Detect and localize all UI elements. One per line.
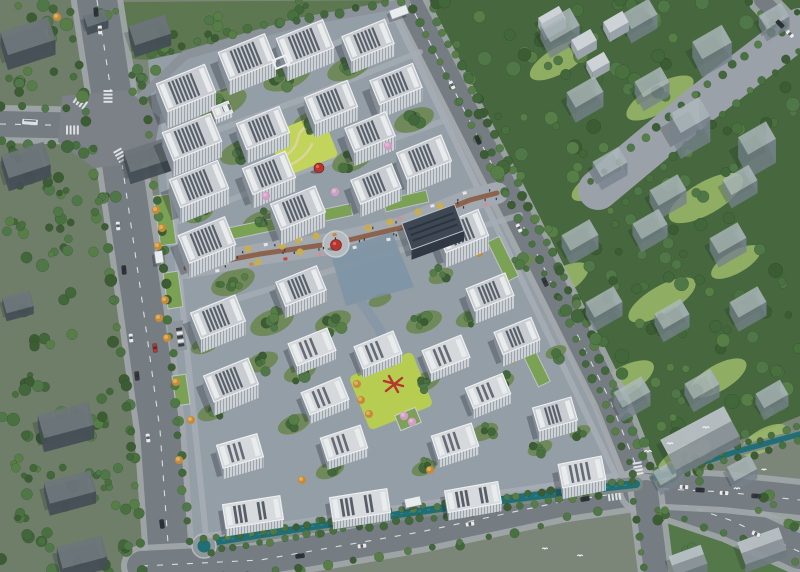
tree <box>518 48 531 61</box>
tree <box>612 428 620 436</box>
yellow-street-tree <box>386 218 393 225</box>
entrance-gate <box>154 251 164 264</box>
tree <box>560 304 572 316</box>
tree <box>318 530 325 537</box>
crosswalk-bar <box>66 126 68 135</box>
tree <box>111 501 120 510</box>
tree <box>473 11 485 23</box>
tree <box>553 56 562 65</box>
tree <box>49 5 58 14</box>
pedestrian <box>496 198 497 200</box>
pedestrian <box>485 199 486 201</box>
tree <box>468 322 474 328</box>
tree <box>22 529 33 540</box>
tree <box>381 0 388 7</box>
tree <box>67 219 74 226</box>
tree <box>754 41 762 49</box>
tree <box>62 104 70 112</box>
tree <box>101 485 107 491</box>
tree <box>19 383 31 395</box>
tree <box>536 449 545 458</box>
tree <box>635 319 645 329</box>
bird <box>762 469 767 470</box>
car-glass <box>698 488 701 492</box>
tree <box>72 196 82 206</box>
tree <box>457 61 467 71</box>
tree <box>428 46 436 54</box>
tree <box>579 430 586 437</box>
tree <box>380 522 388 530</box>
pedestrian <box>395 221 396 223</box>
car-glass <box>468 522 471 526</box>
tree <box>668 225 678 235</box>
tree <box>67 329 78 340</box>
tree <box>488 149 496 157</box>
autumn-tree-highlight <box>164 335 168 339</box>
blossom-tree-highlight <box>409 419 413 423</box>
tree <box>474 109 484 119</box>
tree <box>21 473 27 479</box>
tree <box>651 49 665 63</box>
tree <box>747 331 759 343</box>
tree <box>758 76 766 84</box>
pedestrian <box>364 238 365 240</box>
blossom-tree-highlight <box>401 413 405 417</box>
yellow-street-tree <box>296 248 303 255</box>
car <box>719 491 728 496</box>
autumn-tree-highlight <box>366 411 370 415</box>
tree <box>520 114 527 121</box>
tree <box>138 74 145 81</box>
tree <box>70 73 77 80</box>
autumn-tree-highlight <box>188 417 192 421</box>
tree <box>696 469 703 476</box>
tree <box>440 272 446 278</box>
tree <box>529 241 536 248</box>
tree <box>638 549 644 555</box>
tree <box>335 9 345 19</box>
tree <box>516 502 523 509</box>
tree <box>515 259 525 269</box>
tree <box>486 534 492 540</box>
tree <box>468 86 476 94</box>
tree <box>779 442 786 449</box>
tree <box>654 507 660 513</box>
tree <box>2 227 11 236</box>
tree <box>131 482 138 489</box>
tree <box>741 429 750 438</box>
tree <box>550 281 556 287</box>
tree <box>107 336 119 348</box>
tree <box>293 534 300 541</box>
autumn-tree-highlight <box>176 457 180 461</box>
tree <box>590 333 602 345</box>
car <box>134 371 139 380</box>
tree <box>668 33 678 43</box>
bus <box>22 118 38 125</box>
tree <box>720 457 727 464</box>
tree <box>365 523 373 531</box>
tree <box>404 548 411 555</box>
tree <box>174 432 181 439</box>
car <box>115 221 120 230</box>
tree <box>757 437 764 444</box>
tree <box>429 544 435 550</box>
red-sphere-sculpture <box>314 163 324 173</box>
tree <box>331 314 341 324</box>
tree <box>293 17 300 24</box>
tree <box>754 244 765 255</box>
tree <box>627 144 635 152</box>
tree <box>230 281 236 287</box>
tree <box>281 81 292 92</box>
tree <box>781 55 790 64</box>
tree <box>18 221 25 228</box>
tree <box>615 248 622 255</box>
tree <box>598 143 608 153</box>
tree <box>437 59 443 65</box>
tree <box>392 517 400 525</box>
tree <box>615 349 629 363</box>
tree <box>430 269 437 276</box>
tree <box>602 401 609 408</box>
tree <box>228 30 237 39</box>
tree <box>661 507 669 515</box>
tree <box>416 18 425 27</box>
tree <box>214 12 223 21</box>
car <box>97 25 102 34</box>
tree <box>632 284 642 294</box>
tree <box>719 111 726 118</box>
tree <box>560 69 571 80</box>
tree <box>544 225 552 233</box>
tree <box>63 187 69 193</box>
car <box>145 433 150 442</box>
tree <box>260 208 267 215</box>
tree <box>50 68 58 76</box>
tree <box>100 470 110 480</box>
tree <box>75 61 83 69</box>
tree <box>504 503 512 511</box>
red-sphere-sculpture <box>331 240 342 251</box>
tree <box>704 81 711 88</box>
tree <box>496 144 504 152</box>
tree <box>456 98 463 105</box>
autumn-tree-highlight <box>173 379 177 383</box>
tree <box>622 198 630 206</box>
tree <box>352 4 359 11</box>
tree <box>14 87 23 96</box>
tree <box>662 238 673 249</box>
yellow-street-tree <box>364 224 371 231</box>
tree <box>168 363 176 371</box>
tree <box>543 239 550 246</box>
tree <box>573 336 579 342</box>
tree <box>126 442 136 452</box>
tree <box>163 315 172 324</box>
tree <box>490 166 504 180</box>
tree <box>138 81 146 89</box>
tree <box>490 130 499 139</box>
tree <box>768 263 782 277</box>
crosswalk-bar <box>77 126 79 135</box>
tree <box>666 363 674 371</box>
tree <box>547 487 555 495</box>
tree <box>456 539 463 546</box>
tree <box>700 524 708 532</box>
tree <box>0 412 7 422</box>
tree <box>658 0 671 13</box>
tree <box>483 119 492 128</box>
car-glass <box>98 28 102 31</box>
tree <box>606 415 614 423</box>
tree <box>208 549 215 556</box>
tree <box>350 557 357 564</box>
tree <box>517 191 527 201</box>
tree <box>723 127 731 135</box>
tree <box>178 43 185 50</box>
tree <box>213 534 220 541</box>
tree <box>161 279 171 289</box>
tree <box>794 9 800 15</box>
tree <box>587 119 601 133</box>
tree <box>626 459 632 465</box>
crosswalk-bar <box>70 126 72 135</box>
tree <box>271 324 278 331</box>
tree <box>778 277 786 285</box>
tree <box>182 502 191 511</box>
tree <box>468 122 475 129</box>
tree <box>90 145 97 152</box>
tree <box>692 91 699 98</box>
pedestrian <box>225 265 226 267</box>
tree <box>642 134 650 142</box>
tree <box>103 243 113 253</box>
tree <box>38 538 44 544</box>
tree <box>517 172 526 181</box>
tree <box>652 123 660 131</box>
tree <box>679 250 687 258</box>
pedestrian <box>457 202 458 204</box>
tree <box>136 539 145 548</box>
tree <box>14 78 24 88</box>
tree <box>682 365 689 372</box>
tree <box>695 477 703 485</box>
tree <box>669 152 678 161</box>
tree <box>78 148 89 159</box>
tree <box>53 207 63 217</box>
tree <box>535 225 544 234</box>
tree <box>374 552 384 562</box>
tree <box>504 494 510 500</box>
autumn-tree-highlight <box>156 315 160 319</box>
tree <box>302 530 310 538</box>
tree <box>721 167 731 177</box>
tree <box>241 273 248 280</box>
pedestrian <box>284 249 285 251</box>
car-glass <box>722 491 725 495</box>
tree <box>572 299 581 308</box>
tree <box>597 387 603 393</box>
tree <box>47 140 56 149</box>
tree <box>21 252 32 263</box>
tree <box>548 248 557 257</box>
tree <box>544 62 552 70</box>
car-glass <box>160 522 164 525</box>
tree <box>7 413 20 426</box>
tree <box>69 35 76 42</box>
tree <box>745 439 751 445</box>
tree <box>178 469 186 477</box>
tree <box>110 191 122 203</box>
tree <box>5 75 12 82</box>
tree <box>566 142 579 155</box>
tree <box>538 523 544 529</box>
tree <box>15 454 24 463</box>
tree <box>416 514 424 522</box>
tree <box>630 498 637 505</box>
tree <box>601 367 609 375</box>
tree <box>59 464 66 471</box>
tree <box>276 18 285 27</box>
tree <box>512 493 519 500</box>
tree <box>607 207 614 214</box>
tree <box>153 196 161 204</box>
tree <box>659 252 671 264</box>
tree <box>669 414 676 421</box>
tree <box>211 34 219 42</box>
tree <box>292 378 299 385</box>
car <box>121 265 126 274</box>
tree <box>656 421 666 431</box>
tree <box>747 87 753 93</box>
tree <box>507 201 515 209</box>
tree <box>707 464 714 471</box>
tree <box>780 82 791 93</box>
car <box>679 485 688 490</box>
tree <box>514 214 523 223</box>
tree <box>723 326 731 334</box>
pedestrian <box>372 227 373 229</box>
pedestrian <box>294 252 295 254</box>
tree <box>611 220 618 227</box>
blossom-tree-highlight <box>385 143 389 147</box>
tree <box>739 15 754 30</box>
tree <box>681 516 687 522</box>
tree <box>48 251 54 257</box>
tree <box>438 29 446 37</box>
road <box>646 492 656 572</box>
blossom-tree-highlight <box>263 193 267 197</box>
tree <box>595 492 603 500</box>
crosswalk-bar <box>104 97 113 99</box>
tree <box>41 105 49 113</box>
yellow-street-tree <box>244 245 251 252</box>
tree <box>122 402 131 411</box>
tree <box>319 517 326 524</box>
autumn-tree-highlight <box>155 243 159 247</box>
tree <box>756 361 769 374</box>
pedestrian <box>318 248 319 250</box>
pedestrian <box>396 234 397 236</box>
car-glass <box>298 554 301 558</box>
sphere-highlight <box>333 242 336 245</box>
tree <box>515 148 528 161</box>
tree <box>218 281 225 288</box>
tree <box>587 178 593 184</box>
tree <box>113 8 119 14</box>
tree <box>555 266 565 276</box>
autumn-tree-highlight <box>358 397 362 401</box>
car <box>93 7 98 16</box>
tree <box>795 48 800 54</box>
tree <box>772 69 778 75</box>
tree <box>785 311 792 318</box>
tree <box>113 323 121 331</box>
tree <box>792 558 799 565</box>
tree <box>37 0 50 12</box>
tree <box>579 149 587 157</box>
tree <box>293 524 300 531</box>
tree <box>481 428 488 435</box>
pedestrian <box>489 189 490 191</box>
tree <box>464 74 474 84</box>
tree <box>23 67 32 76</box>
pedestrian <box>463 206 464 208</box>
tree <box>21 431 30 440</box>
car-glass <box>360 544 363 548</box>
tree <box>794 437 800 445</box>
tree <box>0 137 6 145</box>
tree <box>579 349 586 356</box>
tree <box>53 172 64 183</box>
autumn-tree-highlight <box>54 14 58 18</box>
car <box>152 343 157 352</box>
tree <box>256 539 262 545</box>
car <box>159 519 164 528</box>
tree <box>434 503 442 511</box>
tree <box>639 437 649 447</box>
tree <box>216 98 222 104</box>
car-glass <box>583 497 586 501</box>
tree <box>765 447 772 454</box>
tree <box>745 0 753 6</box>
tree <box>30 341 40 351</box>
tree <box>674 277 688 291</box>
tree <box>716 334 730 348</box>
tree <box>501 126 509 134</box>
pedestrian <box>274 244 275 246</box>
pedestrian <box>457 199 458 201</box>
tree <box>472 93 482 103</box>
tree <box>57 190 63 196</box>
tree <box>510 528 519 537</box>
tree <box>213 21 224 32</box>
tree <box>660 163 667 170</box>
tree <box>186 538 193 545</box>
tree <box>67 8 75 16</box>
tree <box>303 521 310 528</box>
tree <box>282 535 289 542</box>
car <box>295 553 304 558</box>
tree <box>768 432 775 439</box>
autumn-tree-highlight <box>162 297 166 301</box>
yellow-street-tree <box>414 208 421 215</box>
tree <box>556 295 562 301</box>
tree <box>177 486 186 495</box>
yellow-street-tree <box>312 232 319 239</box>
tree <box>27 81 37 91</box>
